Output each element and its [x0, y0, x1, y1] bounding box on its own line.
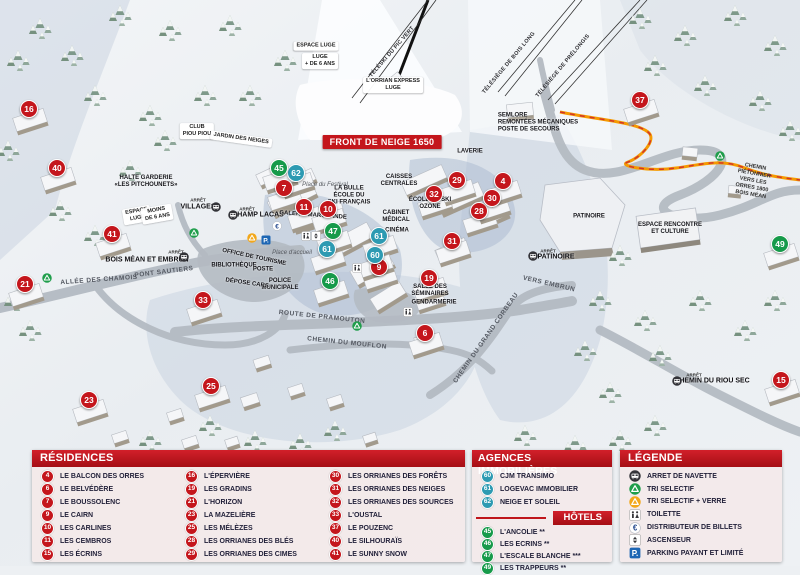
map-marker-11-8: 11 — [295, 198, 313, 216]
number-badge: 47 — [481, 550, 494, 563]
map-marker-62-21: 62 — [287, 164, 305, 182]
residence-item-15: 15LES ÉCRINS — [32, 548, 176, 561]
item-label: LE BELVÉDÈRE — [60, 486, 113, 493]
map-marker-4-18: 4 — [494, 172, 512, 190]
residence-item-11: 11LES CEMBROS — [32, 535, 176, 548]
recycle-green-icon — [42, 273, 52, 283]
item-label: ARRET DE NAVETTE — [647, 473, 717, 480]
map-label-41: CABINET MÉDICAL — [382, 210, 409, 224]
agency-item-62: 62NEIGE ET SOLEIL — [472, 496, 612, 509]
item-label: LES ORRIANES DES SOURCES — [348, 499, 453, 506]
map-label-45: PATINOIRE — [573, 213, 605, 220]
residence-item-30: 30LES ORRIANES DES FORÊTS — [320, 470, 464, 483]
number-badge: 16 — [185, 470, 198, 483]
number-badge: 28 — [185, 535, 198, 548]
number-badge: 60 — [481, 470, 494, 483]
residence-item-31: 31LES ORRIANES DES NEIGES — [320, 483, 464, 496]
map-marker-30-17: 30 — [483, 189, 501, 207]
map-marker-15-20: 15 — [772, 371, 790, 389]
map-label-0: FRONT DE NEIGE 1650 — [323, 135, 442, 149]
item-label: CJM TRANSIMO — [500, 473, 554, 480]
number-badge: 33 — [329, 509, 342, 522]
residences-header: RÉSIDENCES — [32, 450, 465, 467]
map-marker-37-19: 37 — [631, 91, 649, 109]
map-label-16: CHAMP LACAS — [232, 212, 284, 219]
item-label: LE SILHOURAÏS — [348, 538, 402, 545]
map-label-46: ESPACE RENCONTRE ET CULTURE — [638, 222, 702, 236]
wc-icon — [301, 231, 311, 241]
residences-panel: RÉSIDENCES 4LE BALCON DES ORRES6LE BELVÉ… — [32, 450, 465, 562]
bus-icon — [672, 376, 682, 386]
bus-icon — [179, 252, 189, 262]
number-badge: 19 — [185, 483, 198, 496]
item-label: LE SUNNY SNOW — [348, 551, 407, 558]
map-marker-61-22: 61 — [318, 240, 336, 258]
hotels-header: HÔTELS — [553, 511, 612, 525]
map-marker-40-1: 40 — [48, 159, 66, 177]
map-marker-23-4: 23 — [80, 391, 98, 409]
recycle-green-icon — [189, 228, 199, 238]
item-label: TRI SELECTIF — [647, 486, 694, 493]
map-marker-19-12: 19 — [420, 269, 438, 287]
item-label: LES ECRINS ** — [500, 541, 549, 548]
hotel-item-46: 46LES ECRINS ** — [472, 538, 612, 550]
legende-item-0: ARRET DE NAVETTE — [620, 470, 782, 483]
map-label-8: HALTE GARDERIE «LES PITCHOUNETS» — [114, 175, 177, 189]
item-label: LE BOUSSOLENC — [60, 499, 120, 506]
map-label-29: POSTE — [253, 266, 273, 273]
map-label-20: PATINOIRE — [537, 254, 574, 261]
map-marker-45-25: 45 — [270, 159, 288, 177]
hotels-header-bar: HÔTELS — [472, 511, 612, 525]
euro-icon: € — [629, 522, 641, 534]
map-label-42: CINÉMA — [385, 227, 409, 234]
elevator-icon — [311, 231, 321, 241]
recycle-green-icon — [715, 151, 725, 161]
parking-icon: P. — [629, 547, 641, 559]
residence-item-41: 41LE SUNNY SNOW — [320, 548, 464, 561]
residence-item-37: 37LE POUZENC — [320, 522, 464, 535]
residence-item-28: 28LES ORRIANES DES BLÉS — [176, 535, 320, 548]
item-label: LES ORRIANES DES BLÉS — [204, 538, 293, 545]
legende-header: LÉGENDE — [620, 450, 782, 467]
elevator-icon — [629, 534, 641, 546]
item-label: L'ESCALE BLANCHE *** — [500, 553, 581, 560]
agences-list: 60CJM TRANSIMO61LOGEVAC IMMOBILIER62NEIG… — [472, 467, 612, 509]
hotels-divider — [476, 517, 546, 519]
map-label-11: ESPACE LUGE — [293, 42, 338, 51]
legende-panel: LÉGENDE ARRET DE NAVETTETRI SELECTIFTRI … — [620, 450, 782, 562]
map-label-1: L'ORRIAN EXPRESS LUGE — [363, 77, 423, 93]
legende-item-3: TOILETTE — [620, 508, 782, 521]
item-label: LES ORRIANES DES CIMES — [204, 551, 297, 558]
number-badge: 21 — [185, 496, 198, 509]
number-badge: 10 — [41, 522, 54, 535]
residence-item-16: 16L'ÉPERVIÈRE — [176, 470, 320, 483]
item-label: LES ORRIANES DES FORÊTS — [348, 473, 447, 480]
bus-icon — [528, 251, 538, 261]
residences-column-3: 30LES ORRIANES DES FORÊTS31LES ORRIANES … — [320, 470, 464, 561]
number-badge: 31 — [329, 483, 342, 496]
residences-column-1: 4LE BALCON DES ORRES6LE BELVÉDÈRE7LE BOU… — [32, 470, 176, 561]
item-label: LES ÉCRINS — [60, 551, 102, 558]
legende-item-1: TRI SELECTIF — [620, 483, 782, 496]
number-badge: 37 — [329, 522, 342, 535]
euro-icon: € — [272, 221, 282, 231]
svg-text:P.: P. — [263, 238, 269, 245]
residence-item-10: 10LES CARLINES — [32, 522, 176, 535]
map-marker-49-28: 49 — [771, 235, 789, 253]
number-badge: 45 — [481, 526, 494, 539]
map-marker-33-6: 33 — [194, 291, 212, 309]
wc-icon — [403, 307, 413, 317]
recycle-yellow-icon — [247, 233, 257, 243]
map-label-18: BOIS MÉAN ET EMBRUN — [105, 257, 188, 264]
map-marker-60-24: 60 — [366, 246, 384, 264]
hotel-item-47: 47L'ESCALE BLANCHE *** — [472, 550, 612, 562]
number-badge: 61 — [481, 483, 494, 496]
svg-text:P.: P. — [632, 549, 639, 558]
map-label-5: SEMLORE REMONTÉES MÉCANIQUES POSTE DE SE… — [498, 112, 578, 133]
legende-item-6: P.PARKING PAYANT ET LIMITÉ — [620, 547, 782, 560]
map-marker-61-23: 61 — [370, 227, 388, 245]
residences-column-2: 16L'ÉPERVIÈRE19LES GRADINS21L'HORIZON23L… — [176, 470, 320, 561]
legende-list: ARRET DE NAVETTETRI SELECTIFTRI SELECTIF… — [620, 467, 782, 560]
item-label: L'OUSTAL — [348, 512, 382, 519]
residence-item-19: 19LES GRADINS — [176, 483, 320, 496]
map-label-44: GENDARMERIE — [411, 299, 456, 306]
map-marker-7-7: 7 — [275, 179, 293, 197]
map-label-25: Place du Festival — [302, 182, 348, 188]
legende-item-4: €DISTRIBUTEUR DE BILLETS — [620, 521, 782, 534]
item-label: LOGEVAC IMMOBILIER — [500, 486, 578, 493]
hotel-item-45: 45L'ANCOLIE ** — [472, 526, 612, 538]
svg-text:€: € — [633, 523, 638, 532]
item-label: LES CARLINES — [60, 525, 111, 532]
recycle-yellow-icon — [629, 496, 641, 508]
item-label: TRI SELECTIF + VERRE — [647, 498, 726, 505]
hotel-item-49: 49LES TRAPPEURS ** — [472, 562, 612, 574]
number-badge: 49 — [481, 562, 494, 575]
map-marker-6-11: 6 — [416, 324, 434, 342]
agences-panel: AGENCES IMMOBILIÈRES 60CJM TRANSIMO61LOG… — [472, 450, 612, 562]
legende-item-5: ASCENSEUR — [620, 534, 782, 547]
map-marker-21-3: 21 — [16, 275, 34, 293]
item-label: TOILETTE — [647, 511, 681, 518]
item-label: LES ORRIANES DES NEIGES — [348, 486, 445, 493]
number-badge: 41 — [329, 548, 342, 561]
map-marker-16-0: 16 — [20, 100, 38, 118]
item-label: PARKING PAYANT ET LIMITÉ — [647, 550, 743, 557]
number-badge: 7 — [41, 496, 54, 509]
map-marker-29-14: 29 — [448, 171, 466, 189]
item-label: L'ANCOLIE ** — [500, 529, 545, 536]
map-label-28: BIBLIOTHÈQUE — [211, 262, 256, 269]
item-label: NEIGE ET SOLEIL — [500, 499, 560, 506]
number-badge: 4 — [41, 470, 54, 483]
residences-list: 4LE BALCON DES ORRES6LE BELVÉDÈRE7LE BOU… — [32, 467, 465, 561]
parking-icon: P. — [261, 235, 271, 245]
map-marker-31-15: 31 — [443, 232, 461, 250]
residence-item-40: 40LE SILHOURAÏS — [320, 535, 464, 548]
map-label-22: CHEMIN DU RIOU SEC — [674, 378, 749, 385]
number-badge: 9 — [41, 509, 54, 522]
item-label: LE POUZENC — [348, 525, 393, 532]
residence-item-4: 4LE BALCON DES ORRES — [32, 470, 176, 483]
agency-item-61: 61LOGEVAC IMMOBILIER — [472, 483, 612, 496]
item-label: ASCENSEUR — [647, 537, 691, 544]
bus-icon — [228, 210, 238, 220]
residence-item-29: 29LES ORRIANES DES CIMES — [176, 548, 320, 561]
recycle-green-icon — [352, 321, 362, 331]
number-badge: 32 — [329, 496, 342, 509]
residence-item-23: 23LA MAZELIÈRE — [176, 509, 320, 522]
residence-item-9: 9LE CAIRN — [32, 509, 176, 522]
item-label: L'HORIZON — [204, 499, 242, 506]
legende-item-2: TRI SELECTIF + VERRE — [620, 496, 782, 509]
map-marker-25-5: 25 — [202, 377, 220, 395]
number-badge: 25 — [185, 522, 198, 535]
residence-item-7: 7LE BOUSSOLENC — [32, 496, 176, 509]
number-badge: 62 — [481, 496, 494, 509]
map-label-12: LUGE + DE 6 ANS — [302, 53, 338, 69]
number-badge: 29 — [185, 548, 198, 561]
map-marker-10-9: 10 — [319, 200, 337, 218]
svg-text:€: € — [275, 223, 279, 230]
agences-header: AGENCES IMMOBILIÈRES — [472, 450, 612, 467]
bus-icon — [211, 202, 221, 212]
number-badge: 46 — [481, 538, 494, 551]
residence-item-32: 32LES ORRIANES DES SOURCES — [320, 496, 464, 509]
map-marker-32-13: 32 — [425, 185, 443, 203]
map-label-13: ARRÊT — [190, 198, 206, 203]
recycle-green-icon — [629, 483, 641, 495]
wc-icon — [352, 263, 362, 273]
residence-item-21: 21L'HORIZON — [176, 496, 320, 509]
map-marker-47-26: 47 — [324, 222, 342, 240]
number-badge: 23 — [185, 509, 198, 522]
residence-item-33: 33L'OUSTAL — [320, 509, 464, 522]
residence-item-25: 25LES MÉLÈZES — [176, 522, 320, 535]
map-label-6: CLUB PIOU PIOU — [180, 123, 214, 139]
residence-item-6: 6LE BELVÉDÈRE — [32, 483, 176, 496]
map-label-26: Place d'accueil — [272, 250, 312, 256]
number-badge: 30 — [329, 470, 342, 483]
item-label: LES MÉLÈZES — [204, 525, 253, 532]
item-label: LE BALCON DES ORRES — [60, 473, 144, 480]
number-badge: 6 — [41, 483, 54, 496]
map-label-38: LAVERIE — [457, 148, 483, 155]
item-label: DISTRIBUTEUR DE BILLETS — [647, 524, 742, 531]
map-label-39: CAISSES CENTRALES — [381, 174, 418, 188]
map-marker-46-27: 46 — [321, 272, 339, 290]
bus-icon — [629, 470, 641, 482]
map-marker-41-2: 41 — [103, 225, 121, 243]
item-label: L'ÉPERVIÈRE — [204, 473, 250, 480]
wc-icon — [629, 509, 641, 521]
item-label: LES GRADINS — [204, 486, 252, 493]
hotels-list: 45L'ANCOLIE **46LES ECRINS **47L'ESCALE … — [472, 526, 612, 574]
number-badge: 40 — [329, 535, 342, 548]
number-badge: 15 — [41, 548, 54, 561]
number-badge: 11 — [41, 535, 54, 548]
item-label: LES CEMBROS — [60, 538, 111, 545]
item-label: LE CAIRN — [60, 512, 93, 519]
item-label: LA MAZELIÈRE — [204, 512, 255, 519]
